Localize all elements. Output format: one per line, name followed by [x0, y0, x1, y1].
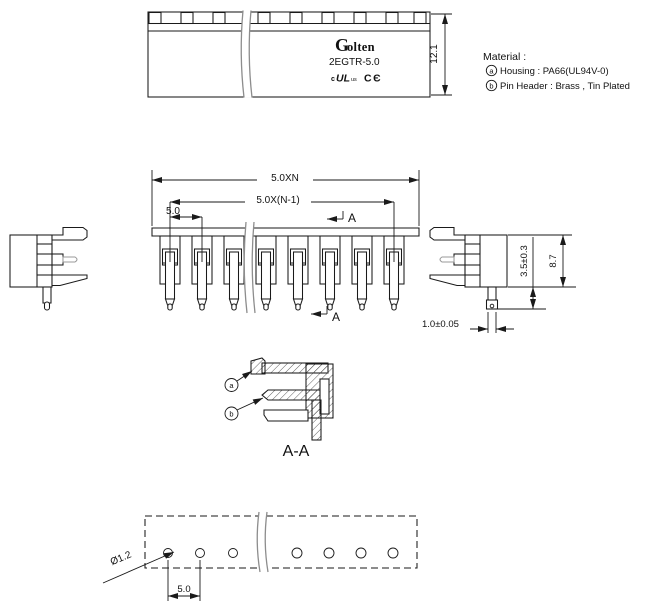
pin-positions [160, 236, 404, 310]
section-letter-bottom: A [332, 310, 340, 324]
section-view: a b A-A [225, 358, 333, 460]
callout-b: b [225, 398, 263, 420]
bottom-arm [430, 275, 465, 286]
svg-text:us: us [351, 77, 357, 83]
product-label: G olten 2EGTR-5.0 c UL us CЄ [329, 35, 382, 85]
dim-body-height-text: 8.7 [548, 254, 559, 267]
tape-outline [145, 516, 417, 568]
section-label: A-A [283, 443, 310, 460]
dim-pitch-text: 5.0 [166, 206, 180, 217]
material-item-b-key: b [489, 82, 493, 91]
pin-vertical [312, 400, 321, 440]
right-side-view: 3.5±0.3 8.7 1.0±0.05 [422, 228, 576, 334]
section-cut-arrow-top: A [327, 211, 356, 225]
brand-name: olten [347, 40, 375, 54]
tape-break [257, 512, 268, 572]
contact-pin-side [440, 257, 454, 262]
housing-latch [251, 358, 265, 374]
material-item-b-text: Pin Header : Brass , Tin Plated [500, 81, 630, 92]
technical-drawing-sheet: G olten 2EGTR-5.0 c UL us CЄ 12.1 Materi… [0, 0, 672, 616]
top-view-body [148, 12, 430, 97]
dim-depth-12-1: 12.1 [429, 14, 452, 95]
dim-pin-span-text: 5.0X(N-1) [256, 195, 299, 206]
dim-hole-diameter-text: Ø1.2 [109, 549, 134, 568]
section-cut-arrow-bottom: A [311, 306, 340, 324]
callout-b-text: b [229, 410, 233, 419]
dim-pin-width-text: 1.0±0.05 [422, 319, 459, 330]
dim-pin-span: 5.0X(N-1) [170, 191, 394, 262]
dim-pin-length-text: 3.5±0.3 [519, 245, 530, 277]
ul-mark: c UL us [331, 73, 357, 85]
dim-hole-pitch-text: 5.0 [177, 584, 190, 595]
housing-bottom-wall [264, 410, 308, 421]
model-number: 2EGTR-5.0 [329, 57, 380, 68]
top-view-break [241, 11, 252, 98]
latch-arm [52, 228, 87, 241]
front-view-break [244, 222, 255, 313]
front-view: 5.0XN 5.0X(N-1) 5.0 A A [152, 169, 419, 324]
material-item-a-key: a [489, 67, 494, 76]
solder-pin [43, 287, 51, 303]
bottom-arm [52, 275, 87, 286]
drawing-svg: G olten 2EGTR-5.0 c UL us CЄ 12.1 Materi… [0, 0, 672, 616]
dim-hole-pitch: 5.0 [168, 560, 200, 601]
dim-body-height: 8.7 [508, 235, 572, 287]
section-letter-top: A [348, 211, 356, 225]
dim-depth-text: 12.1 [429, 44, 440, 64]
latch-arm [430, 228, 465, 241]
callout-a-text: a [229, 381, 234, 390]
top-view-slot-tabs [149, 13, 426, 24]
dim-pin-width: 1.0±0.05 [422, 312, 514, 333]
pin-horizontal [262, 390, 320, 400]
svg-text:c: c [331, 76, 335, 83]
ce-mark: CЄ [364, 73, 382, 85]
left-side-view [10, 228, 87, 311]
dim-total-width-text: 5.0XN [271, 173, 299, 184]
material-item-a-text: Housing : PA66(UL94V-0) [500, 66, 609, 77]
contact-pin-side [63, 257, 77, 262]
material-note: Material : a Housing : PA66(UL94V-0) b P… [483, 51, 630, 92]
svg-text:UL: UL [336, 73, 350, 85]
callout-a: a [225, 371, 252, 392]
top-view: G olten 2EGTR-5.0 c UL us CЄ 12.1 [148, 11, 452, 98]
dim-pin-length: 3.5±0.3 [497, 237, 576, 309]
tape-holes [164, 548, 399, 558]
material-title: Material : [483, 51, 526, 63]
tape-view: Ø1.2 5.0 [103, 512, 417, 601]
